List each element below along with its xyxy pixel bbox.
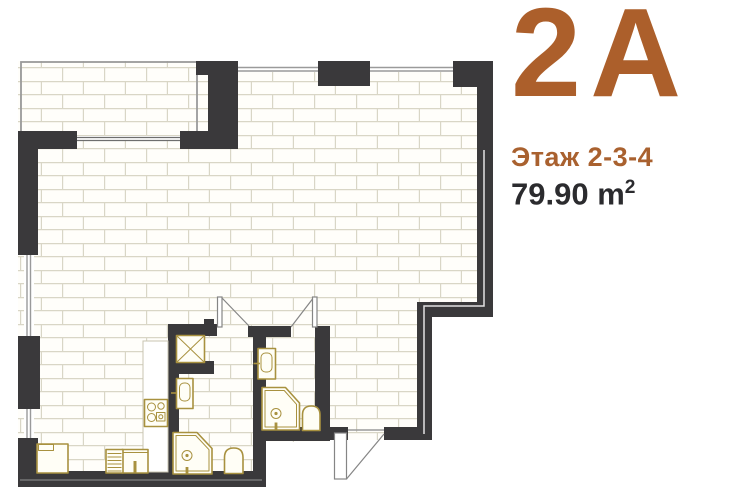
area-value: 79.90 m <box>511 176 625 211</box>
wall-step-horizontal <box>417 302 493 317</box>
wall-balcony-right-top <box>196 61 238 75</box>
dishwasher-icon <box>106 450 123 474</box>
wall-bath-connector <box>248 326 266 337</box>
entrance-door-icon <box>335 433 347 479</box>
wall-right <box>477 61 493 317</box>
kitchen-sink-icon <box>122 450 148 474</box>
door-leaf <box>218 297 223 327</box>
window-top-1 <box>238 64 318 72</box>
toilet-icon <box>225 448 244 474</box>
stove-icon <box>145 400 168 427</box>
wall-entry-right <box>384 427 432 440</box>
window-left-2 <box>24 409 34 438</box>
window-left-1 <box>24 255 34 336</box>
floorplan-page: 2A Этаж 2-3-4 79.90 m2 <box>0 0 736 502</box>
unit-title: 2A <box>511 0 731 116</box>
floorplan-drawing <box>0 0 500 502</box>
wall-left-upper <box>18 131 38 255</box>
wall-balcony-right-vert <box>208 74 238 132</box>
area-label: 79.90 m2 <box>511 178 731 209</box>
wall-top-pier <box>318 61 370 86</box>
wall-bath1-notch <box>204 319 214 325</box>
window-top-2 <box>370 64 453 72</box>
door-leaf <box>313 297 318 327</box>
door-swing-icon <box>347 434 385 479</box>
wall-bath1-top <box>168 324 217 336</box>
wall-balcony-right-bottom <box>180 131 238 149</box>
toilet-icon <box>303 406 321 431</box>
cabinet-icon <box>37 444 68 473</box>
floor-label: Этаж 2-3-4 <box>511 144 731 171</box>
wall-left-middle <box>18 336 40 409</box>
unit-info-panel: 2A Этаж 2-3-4 79.90 m2 <box>511 0 731 209</box>
area-superscript: 2 <box>625 177 636 198</box>
vent-shaft-icon <box>177 336 205 363</box>
